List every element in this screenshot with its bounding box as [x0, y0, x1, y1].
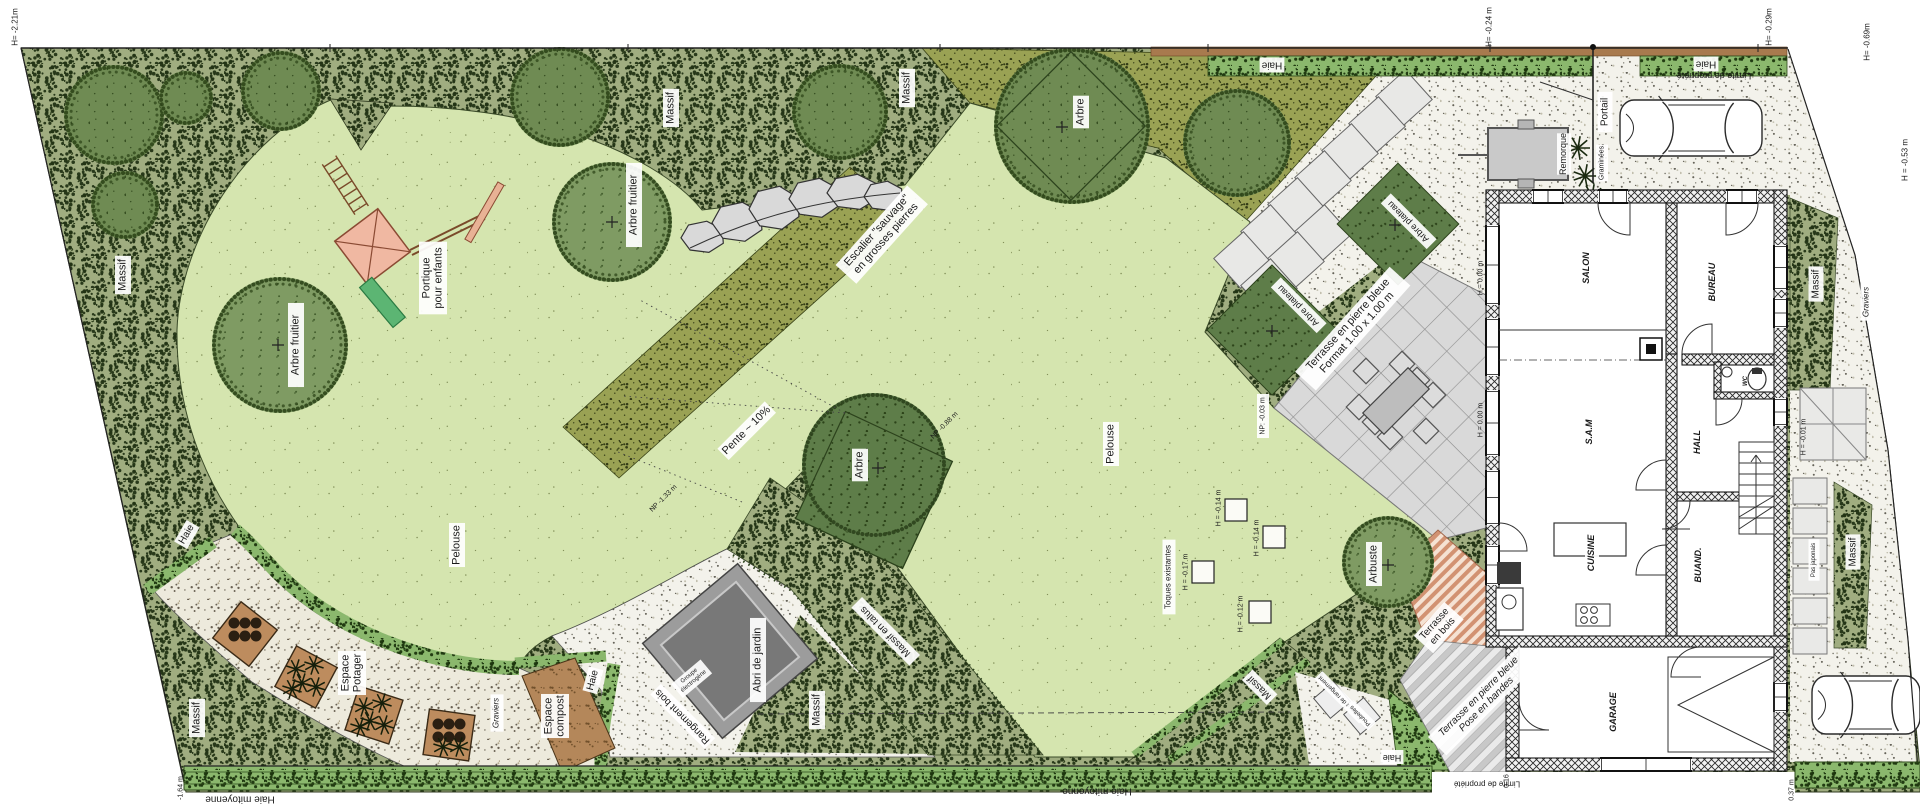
svg-text:S.A.M: S.A.M — [1584, 419, 1594, 445]
svg-text:Haie mitoyenne: Haie mitoyenne — [1062, 786, 1132, 797]
svg-text:pour enfants: pour enfants — [433, 247, 445, 309]
svg-text:Haie: Haie — [1383, 753, 1402, 763]
svg-text:BUAND.: BUAND. — [1693, 548, 1703, 583]
svg-text:WC: WC — [1743, 375, 1749, 386]
svg-text:H= -0.24 m: H= -0.24 m — [1485, 7, 1494, 47]
svg-text:-1.64 m: -1.64 m — [177, 776, 184, 800]
svg-text:compost: compost — [555, 695, 567, 737]
svg-text:H= -0.69m: H= -0.69m — [1863, 23, 1872, 61]
svg-text:Massif: Massif — [117, 258, 129, 291]
svg-text:Massif: Massif — [665, 91, 677, 124]
svg-text:Pelouse: Pelouse — [1105, 424, 1117, 464]
svg-text:H = -0.53 m: H = -0.53 m — [1901, 139, 1910, 181]
svg-text:Massif: Massif — [191, 701, 203, 734]
svg-text:H = -0.14 m: H = -0.14 m — [1253, 519, 1260, 556]
svg-text:Haie: Haie — [1261, 60, 1282, 71]
svg-text:Remorque: Remorque — [1558, 133, 1568, 175]
svg-text:Abri de jardin: Abri de jardin — [752, 628, 764, 693]
svg-text:Espace: Espace — [340, 655, 352, 692]
svg-text:CUISINE: CUISINE — [1586, 534, 1596, 572]
svg-text:H = 0.00 m: H = 0.00 m — [1477, 261, 1484, 296]
svg-text:Massif: Massif — [1847, 537, 1858, 566]
svg-text:H = -0.17 m: H = -0.17 m — [1182, 553, 1189, 590]
svg-text:HALL: HALL — [1692, 430, 1702, 454]
svg-text:Haie: Haie — [1695, 59, 1716, 70]
svg-text:Massif: Massif — [901, 71, 913, 104]
svg-text:Portail: Portail — [1599, 98, 1610, 126]
svg-text:NP: -0.03 m: NP: -0.03 m — [1259, 397, 1266, 435]
svg-text:Haie mitoyenne: Haie mitoyenne — [205, 794, 275, 805]
svg-text:0.37 m: 0.37 m — [1788, 779, 1795, 801]
svg-text:Toques existantes: Toques existantes — [1164, 545, 1173, 609]
svg-text:Graminées: Graminées — [1598, 145, 1605, 180]
svg-text:Espace: Espace — [543, 698, 555, 735]
svg-text:H= -2.21m: H= -2.21m — [11, 8, 20, 46]
svg-text:H = -0.12 m: H = -0.12 m — [1237, 595, 1244, 632]
svg-text:Massif: Massif — [1810, 269, 1821, 298]
svg-text:0.16: 0.16 — [1503, 774, 1510, 788]
svg-text:Arbre fruitier: Arbre fruitier — [290, 314, 302, 375]
svg-text:GARAGE: GARAGE — [1608, 691, 1618, 731]
svg-text:H = 0.00 m: H = 0.00 m — [1477, 403, 1484, 438]
svg-text:H = -0.14 m: H = -0.14 m — [1215, 489, 1222, 526]
svg-text:Arbre: Arbre — [1075, 99, 1087, 126]
svg-text:Portique: Portique — [421, 258, 433, 299]
svg-text:H = -0.01 m: H = -0.01 m — [1800, 418, 1807, 455]
svg-text:Arbuste: Arbuste — [1368, 545, 1380, 583]
svg-text:SALON: SALON — [1581, 252, 1591, 284]
svg-text:Limite de propriété: Limite de propriété — [1677, 71, 1752, 81]
svg-text:BUREAU: BUREAU — [1707, 262, 1717, 301]
svg-text:Graviers: Graviers — [1862, 287, 1871, 317]
svg-text:Arbre fruitier: Arbre fruitier — [628, 174, 640, 235]
svg-text:Arbre: Arbre — [854, 452, 866, 479]
svg-text:Massif: Massif — [811, 693, 823, 726]
svg-text:Pelouse: Pelouse — [451, 525, 463, 565]
svg-text:H= -0.29m: H= -0.29m — [1765, 8, 1774, 46]
svg-text:Potager: Potager — [352, 653, 364, 692]
svg-text:Pas japonais: Pas japonais — [1811, 543, 1817, 577]
svg-text:Graviers: Graviers — [492, 698, 501, 728]
